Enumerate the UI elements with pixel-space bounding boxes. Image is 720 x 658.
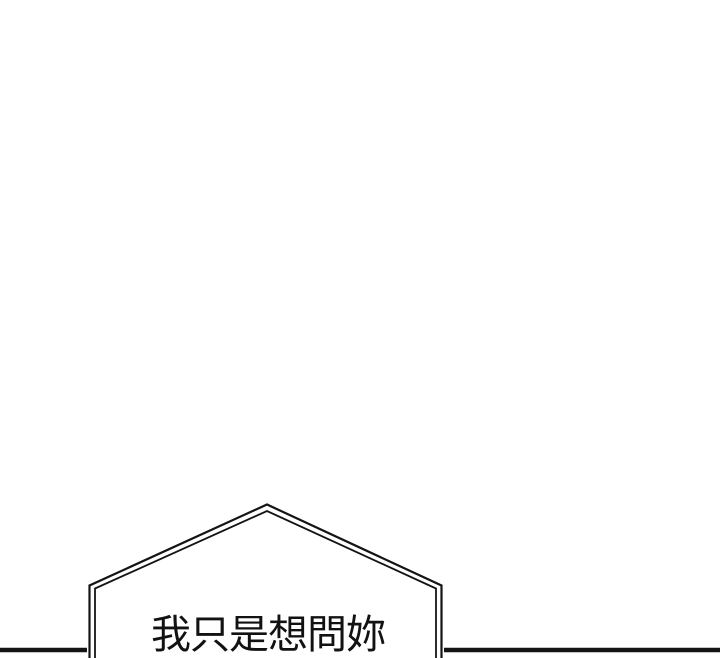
comic-panel: 我只是想問妳 [0,0,720,658]
speech-bubble-text: 我只是想問妳 [151,613,385,657]
panel-artwork [0,0,720,658]
